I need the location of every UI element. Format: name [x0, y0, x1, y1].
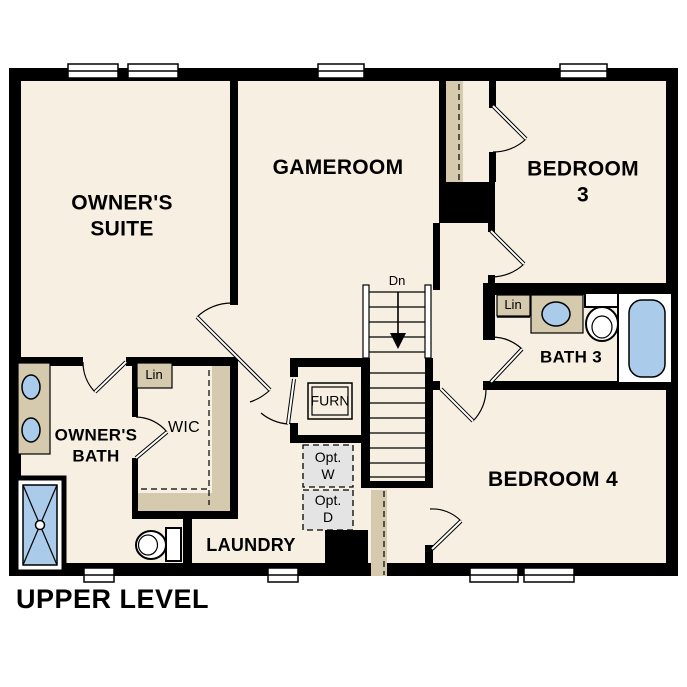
owners-bath-toilet-icon	[136, 528, 181, 561]
plan-title: UPPER LEVEL	[16, 583, 209, 616]
room-label-laundry: LAUNDRY	[206, 535, 295, 557]
stairs-down-label: Dn	[389, 273, 406, 289]
room-label-wic: WIC	[168, 418, 200, 438]
room-label-gameroom: GAMEROOM	[273, 155, 404, 181]
optional-washer-label: Opt. W	[315, 449, 341, 483]
room-label-owners-suite: OWNER'S SUITE	[71, 190, 173, 241]
room-label-owners-bath: OWNER'S BATH	[55, 425, 138, 466]
linen-closet-label-bath3: Lin	[504, 297, 521, 313]
room-label-bath3: BATH 3	[540, 348, 602, 369]
linen-closet-label-wic: Lin	[145, 367, 162, 383]
room-label-bedroom4: BEDROOM 4	[488, 467, 618, 493]
optional-dryer-label: Opt. D	[315, 492, 341, 526]
shower-icon	[16, 478, 64, 572]
bath3-toilet-icon	[585, 293, 620, 341]
furnace-label: FURN	[311, 392, 350, 409]
bath3-sink-icon	[542, 302, 570, 326]
floorplan-page: OWNER'S SUITE GAMEROOM BEDROOM 3 BEDROOM…	[0, 0, 687, 687]
bathtub-icon	[618, 293, 672, 383]
room-label-bedroom3: BEDROOM 3	[527, 156, 639, 207]
